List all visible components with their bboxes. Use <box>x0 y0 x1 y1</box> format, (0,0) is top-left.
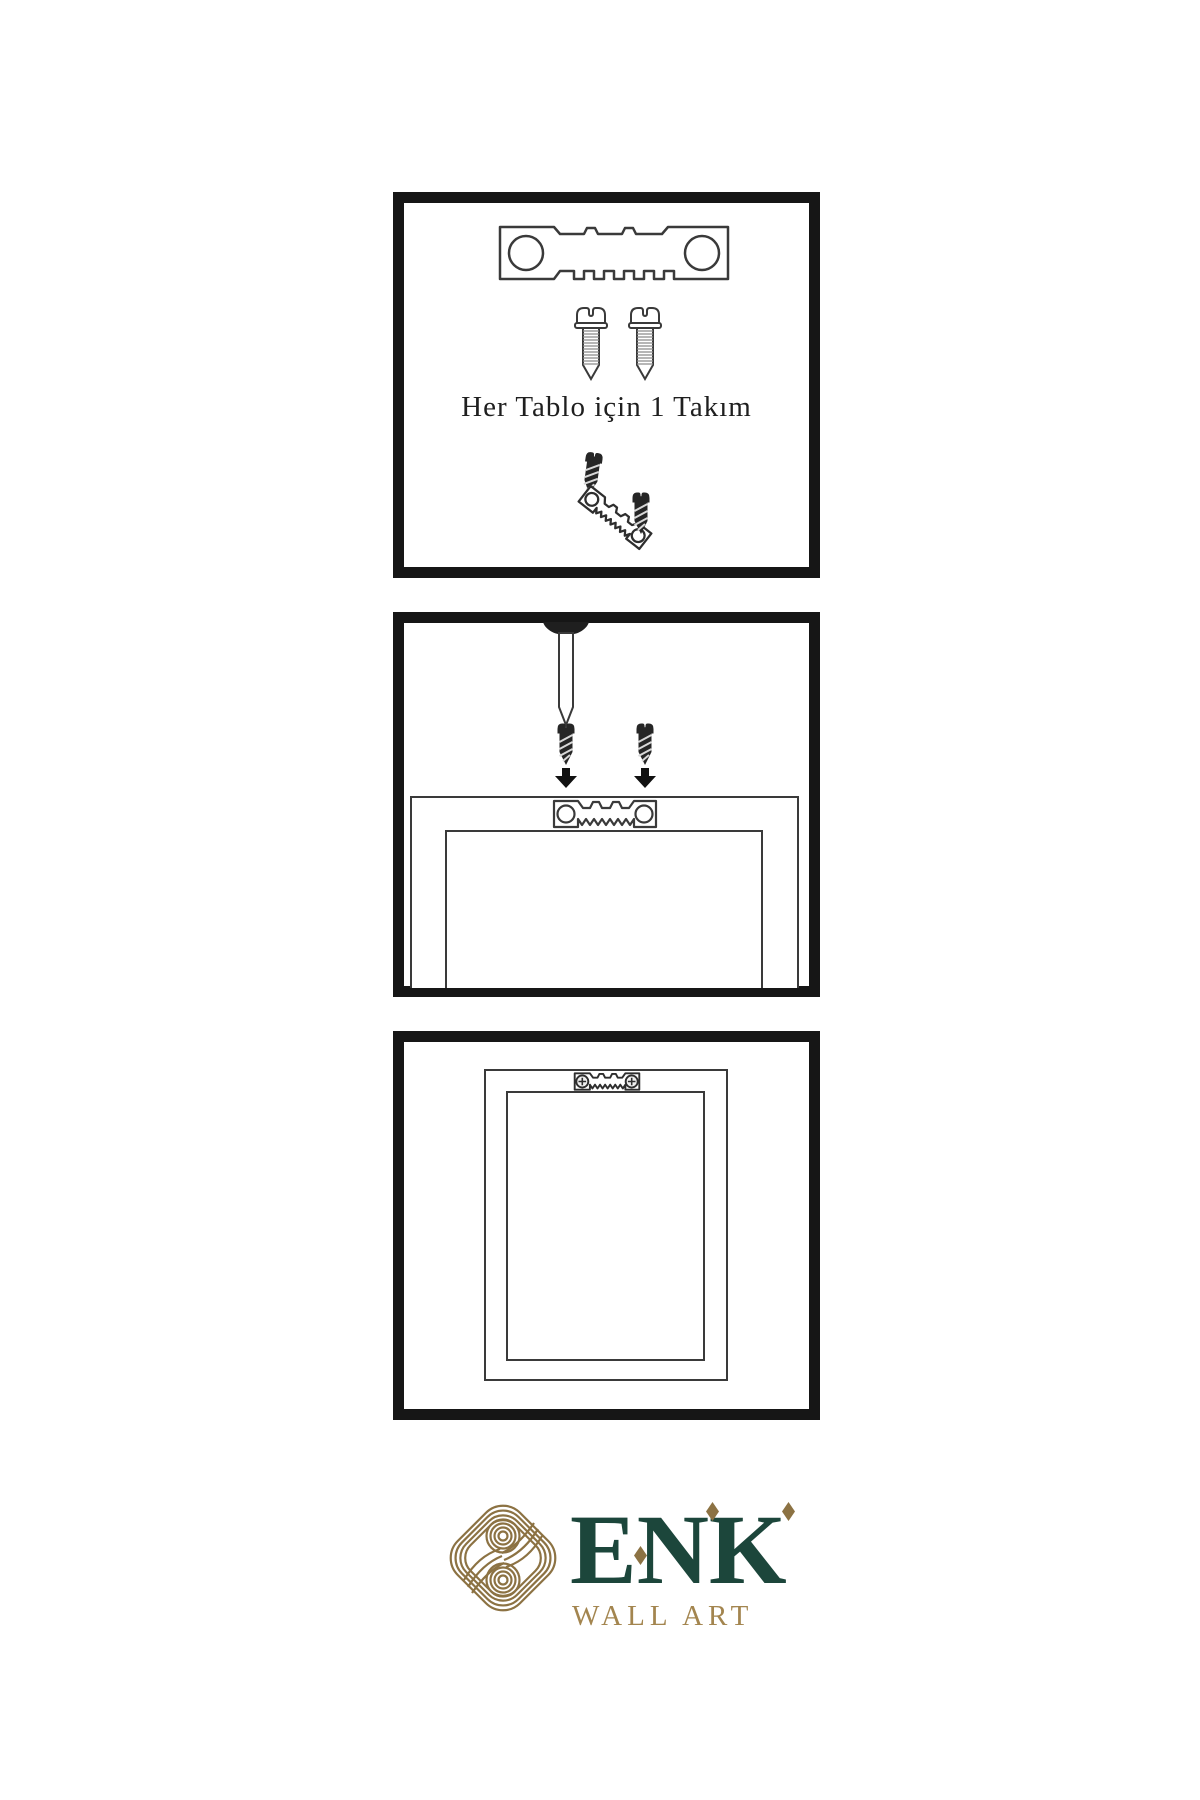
arrow-down-icon <box>555 768 577 788</box>
brand-name: ENK <box>570 1500 787 1600</box>
brand-knot-icon <box>438 1488 568 1628</box>
dark-screw-icon <box>555 721 577 767</box>
brand-tagline: WALL ART <box>572 1600 753 1633</box>
step-panel-hung-frame <box>393 1031 820 1420</box>
step-panel-mounting <box>393 612 820 997</box>
kit-caption: Her Tablo için 1 Takım <box>404 391 809 424</box>
brand-logo: ENK WALL ART <box>438 1488 798 1638</box>
sawtooth-hanger-icon <box>552 799 658 829</box>
frame-back-inner-outline <box>445 830 763 988</box>
sawtooth-hanger-icon <box>498 225 730 281</box>
dark-screw-icon <box>630 490 652 536</box>
wall-nail-icon <box>542 621 590 727</box>
screw-icon <box>573 305 609 381</box>
frame-back-inner-outline <box>506 1091 705 1361</box>
step-panel-hardware-kit: Her Tablo için 1 Takım <box>393 192 820 578</box>
screw-icon <box>627 305 663 381</box>
mounted-sawtooth-hanger-icon <box>573 1072 641 1091</box>
dark-screw-icon <box>634 721 656 767</box>
arrow-down-icon <box>634 768 656 788</box>
